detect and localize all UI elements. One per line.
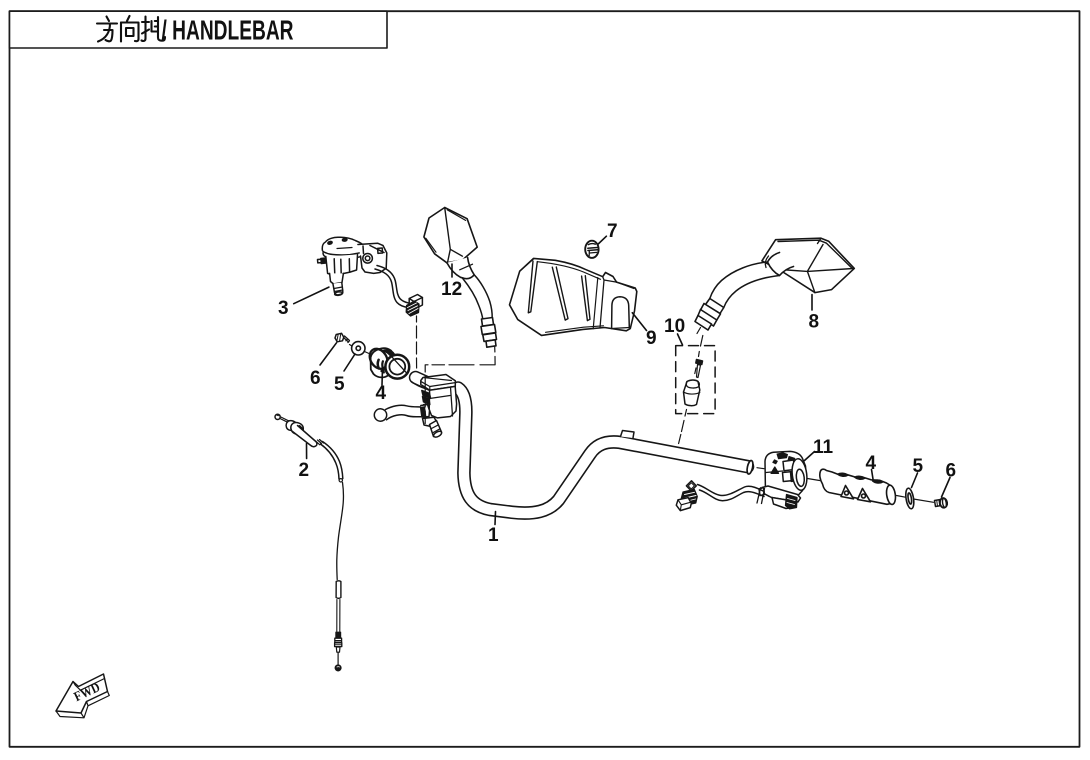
svg-text:9: 9 [646, 328, 657, 349]
svg-text:1: 1 [488, 525, 499, 546]
svg-text:5: 5 [334, 374, 345, 395]
svg-text:2: 2 [299, 460, 310, 481]
svg-text:12: 12 [441, 279, 462, 300]
svg-text:10: 10 [664, 316, 685, 337]
svg-text:4: 4 [376, 383, 387, 404]
svg-text:4: 4 [866, 453, 877, 474]
svg-text:/ HANDLEBAR: / HANDLEBAR [162, 15, 294, 46]
svg-text:6: 6 [310, 368, 321, 389]
svg-text:11: 11 [813, 437, 834, 458]
svg-text:3: 3 [278, 298, 289, 319]
svg-text:6: 6 [946, 461, 957, 482]
svg-text:5: 5 [913, 456, 924, 477]
svg-text:7: 7 [607, 221, 618, 242]
svg-text:8: 8 [809, 312, 820, 333]
